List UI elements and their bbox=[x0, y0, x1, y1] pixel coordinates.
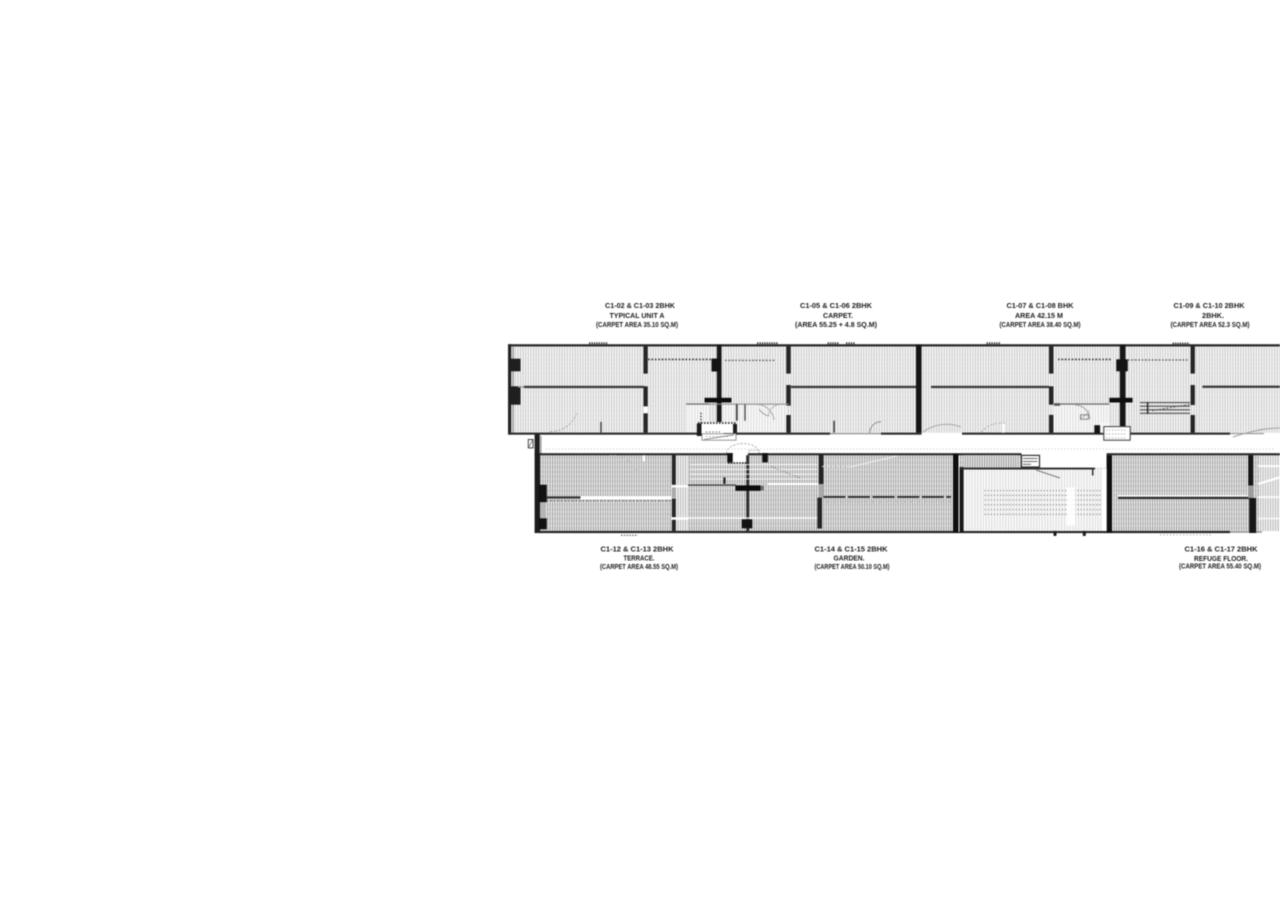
svg-text:(CARPET AREA 38.40 SQ.M): (CARPET AREA 38.40 SQ.M) bbox=[1000, 322, 1081, 329]
svg-text:2BHK.: 2BHK. bbox=[1202, 313, 1224, 320]
svg-text:(CARPET AREA 55.40 SQ.M): (CARPET AREA 55.40 SQ.M) bbox=[1179, 564, 1261, 571]
svg-text:C1-16 & C1-17 2BHK: C1-16 & C1-17 2BHK bbox=[1185, 546, 1258, 553]
svg-text:(CARPET AREA 48.55 SQ.M): (CARPET AREA 48.55 SQ.M) bbox=[600, 564, 678, 571]
svg-text:(CARPET AREA 52.3 SQ.M): (CARPET AREA 52.3 SQ.M) bbox=[1171, 322, 1250, 329]
svg-text:AREA 42.15 M: AREA 42.15 M bbox=[1015, 313, 1063, 320]
svg-text:CARPET.: CARPET. bbox=[823, 313, 853, 320]
svg-text:C1-05 & C1-06 2BHK: C1-05 & C1-06 2BHK bbox=[800, 303, 872, 310]
svg-text:C1-02 & C1-03 2BHK: C1-02 & C1-03 2BHK bbox=[605, 303, 675, 310]
svg-text:C1-09 & C1-10 2BHK: C1-09 & C1-10 2BHK bbox=[1174, 303, 1245, 310]
svg-text:REFUGE FLOOR.: REFUGE FLOOR. bbox=[1194, 556, 1248, 563]
svg-text:C1-14 & C1-15 2BHK: C1-14 & C1-15 2BHK bbox=[815, 546, 888, 553]
svg-text:(CARPET AREA 50.10 SQ.M): (CARPET AREA 50.10 SQ.M) bbox=[815, 564, 890, 571]
svg-text:(CARPET AREA 35.10 SQ.M): (CARPET AREA 35.10 SQ.M) bbox=[596, 322, 678, 329]
svg-text:TERRACE.: TERRACE. bbox=[624, 556, 655, 563]
svg-text:(AREA 55.25 + 4.8 SQ.M): (AREA 55.25 + 4.8 SQ.M) bbox=[795, 322, 877, 329]
svg-text:GARDEN.: GARDEN. bbox=[834, 556, 865, 563]
svg-text:TYPICAL UNIT A: TYPICAL UNIT A bbox=[610, 313, 665, 320]
svg-text:C1-07 & C1-08 BHK: C1-07 & C1-08 BHK bbox=[1007, 303, 1074, 310]
svg-text:C1-12 & C1-13 2BHK: C1-12 & C1-13 2BHK bbox=[601, 546, 674, 553]
